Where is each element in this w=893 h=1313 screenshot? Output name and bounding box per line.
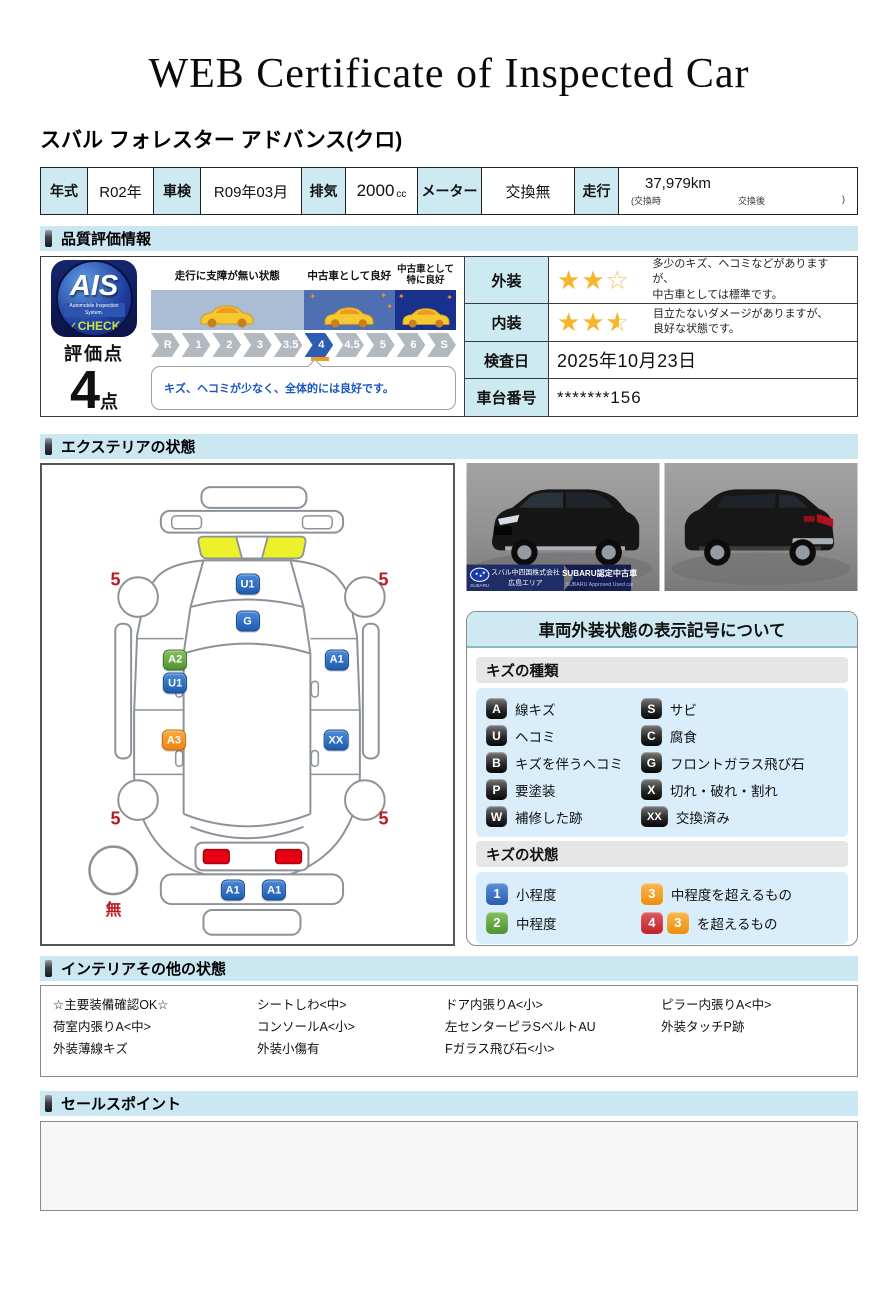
quality-box: AIS Automobile Inspection System. ✓CHECK… — [40, 256, 858, 417]
spec-displacement-label: 排気 — [302, 168, 346, 214]
interior-rating-row: 内装 ★★☆★ 目立たないダメージがありますが、 良好な状態です。 — [465, 304, 857, 342]
ais-score-panel: AIS Automobile Inspection System. ✓CHECK… — [41, 257, 147, 416]
ais-logo-subtext: Automobile Inspection System. — [64, 303, 125, 317]
damage-marker-A1: A1 — [325, 649, 349, 670]
interior-column: ドア内張りA<小>左センターピラSベルトAUFガラス飛び石<小> — [445, 995, 661, 1061]
section-bar-icon — [45, 1095, 52, 1112]
rating-zones: 走行に支障が無い状態 中古車として良好 ✦ ✦ ✦ 中古車として特に良好 — [151, 262, 456, 330]
spec-mileage-value: 37,979km (交換時 交換後 ) — [619, 168, 857, 214]
spare-tire-label: 無 — [105, 896, 121, 920]
mileage-number: 37,979km — [627, 175, 849, 192]
score-value: 4 点 — [70, 366, 118, 415]
legend-state-label: を超えるもの — [697, 913, 778, 933]
chassis-number-label: 車台番号 — [465, 379, 549, 416]
rating-scale: R1233.544.556S — [151, 333, 456, 357]
zone-1-band — [151, 290, 304, 330]
sparkle-icon: ✦ — [386, 302, 393, 311]
damage-code-badge: A — [486, 698, 507, 719]
damage-code-badge: W — [486, 806, 507, 827]
legend-kind-W: W補修した跡 — [486, 803, 641, 830]
star-full-icon: ★ — [581, 309, 604, 335]
interior-condition-item: 外装小傷有 — [257, 1039, 445, 1061]
legend-kind-label: 交換済み — [676, 807, 730, 827]
legend-kind-U: Uヘコミ — [486, 722, 641, 749]
severity-badge: 4 — [641, 912, 663, 934]
damage-code-badge: XX — [641, 806, 668, 827]
legend-kind-G: Gフロントガラス飛び石 — [641, 749, 838, 776]
legend-states-grid: 1小程度3中程度を超えるもの2中程度43を超えるもの — [476, 872, 848, 944]
legend-kind-label: 要塗装 — [515, 780, 556, 800]
legend-kind-C: C腐食 — [641, 722, 838, 749]
dealer-line1: スバル中四国株式会社 — [491, 568, 560, 577]
star-empty-icon: ☆ — [606, 267, 629, 293]
section-bar-icon — [45, 438, 52, 455]
inspection-date-row: 検査日 2025年10月23日 — [465, 342, 857, 380]
quality-section-title: 品質評価情報 — [61, 228, 151, 249]
severity-badge: 3 — [667, 912, 689, 934]
rating-zone-1: 走行に支障が無い状態 — [151, 262, 304, 330]
star-full-icon: ★ — [557, 309, 580, 335]
spec-inspection-value: R09年03月 — [201, 168, 302, 214]
car-icon — [195, 302, 259, 328]
quality-detail-table: 外装 ★★☆ 多少のキズ、ヘコミなどがありますが、 中古車としては標準です。 内… — [464, 257, 857, 416]
rating-step-3.5: 3.5 — [274, 333, 303, 357]
vehicle-photos: SUBARU スバル中四国株式会社 広島エリア SUBARU認定中古車 SUBA… — [466, 463, 858, 591]
rating-scale-panel: 走行に支障が無い状態 中古車として良好 ✦ ✦ ✦ 中古車として特に良好 — [147, 257, 464, 416]
dealer-line2: 広島エリア — [508, 578, 543, 587]
displacement-unit: cc — [396, 189, 406, 200]
interior-text-line2: 良好な状態です。 — [653, 322, 828, 337]
damage-marker-XX: XX — [324, 730, 349, 751]
spec-table: 年式 R02年 車検 R09年03月 排気 2000cc メーター 交換無 走行… — [40, 167, 858, 215]
legend-state-2: 2中程度 — [486, 908, 641, 937]
damage-marker-U1: U1 — [235, 574, 259, 595]
mileage-note: (交換時 交換後 ) — [627, 194, 849, 207]
sales-points-box — [40, 1121, 858, 1211]
legend-state-1: 1小程度 — [486, 879, 641, 908]
car-icon — [399, 305, 453, 328]
legend-kind-label: フロントガラス飛び石 — [670, 753, 805, 773]
tire-tread-score: 5 — [111, 808, 121, 829]
star-full-icon: ★ — [557, 267, 580, 293]
ais-logo-circle: AIS Automobile Inspection System. ✓CHECK — [56, 260, 133, 337]
photo-front-quarter: SUBARU スバル中四国株式会社 広島エリア SUBARU認定中古車 SUBA… — [466, 463, 660, 591]
spec-meter-value: 交換無 — [482, 168, 575, 214]
damage-code-badge: P — [486, 779, 507, 800]
legend-kind-P: P要塗装 — [486, 776, 641, 803]
interior-condition-item: ピラー内張りA<中> — [661, 995, 853, 1017]
interior-condition-item: Fガラス飛び石<小> — [445, 1039, 661, 1061]
zone-3-band: ✦ ✦ — [395, 290, 456, 330]
mileage-note-mid: 交換後 — [738, 194, 765, 207]
legend-kinds-grid: A線キズSサビUヘコミC腐食Bキズを伴うヘコミGフロントガラス飛び石P要塗装X切… — [476, 688, 848, 837]
interior-stars: ★★☆★ — [557, 309, 653, 335]
legend-kind-label: 切れ・破れ・割れ — [670, 780, 778, 800]
interior-section-title: インテリアその他の状態 — [61, 958, 226, 979]
legend-title: 車両外装状態の表示記号について — [467, 612, 857, 648]
dealer-banner: SUBARU スバル中四国株式会社 広島エリア SUBARU認定中古車 SUBA… — [466, 565, 637, 591]
legend-kind-label: ヘコミ — [515, 726, 556, 746]
sales-section-header: セールスポイント — [40, 1091, 858, 1116]
legend-kind-XX: XX交換済み — [641, 803, 838, 830]
badge-title: SUBARU認定中古車 — [562, 568, 637, 578]
interior-condition-item: 外装タッチP跡 — [661, 1017, 853, 1039]
legend-kind-label: 腐食 — [670, 726, 697, 746]
spec-mileage-label: 走行 — [575, 168, 619, 214]
legend-state-label: 中程度を超えるもの — [671, 884, 792, 904]
interior-rating-text: 目立たないダメージがありますが、 良好な状態です。 — [653, 307, 828, 338]
damage-marker-U1: U1 — [163, 673, 187, 694]
quality-section-header: 品質評価情報 — [40, 226, 858, 251]
damage-code-badge: G — [641, 752, 662, 773]
rating-zone-3: 中古車として特に良好 ✦ ✦ — [395, 262, 456, 330]
chassis-number-value: *******156 — [557, 388, 642, 408]
ais-logo: AIS Automobile Inspection System. ✓CHECK — [51, 260, 137, 337]
interior-text-line1: 目立たないダメージがありますが、 — [653, 307, 828, 322]
zone-2-band: ✦ ✦ ✦ — [304, 290, 396, 330]
mileage-note-close: ) — [842, 194, 845, 207]
severity-badge: 1 — [486, 883, 508, 905]
legend-kind-B: Bキズを伴うヘコミ — [486, 749, 641, 776]
rating-step-1: 1 — [182, 333, 211, 357]
damage-code-badge: S — [641, 698, 662, 719]
legend-state-label: 中程度 — [516, 913, 557, 933]
rating-zone-2: 中古車として良好 ✦ ✦ ✦ — [304, 262, 396, 330]
photo-rear-quarter — [664, 463, 858, 591]
legend-kind-S: Sサビ — [641, 695, 838, 722]
damage-marker-A1: A1 — [262, 880, 286, 901]
legend-kind-label: 線キズ — [515, 699, 556, 719]
rating-step-S: S — [427, 333, 456, 357]
legend-state-4: 43を超えるもの — [641, 908, 838, 937]
rating-scale-steps: R1233.544.556S — [151, 333, 456, 357]
spec-inspection-label: 車検 — [154, 168, 201, 214]
exterior-rating-label: 外装 — [465, 257, 549, 303]
rating-step-5: 5 — [366, 333, 395, 357]
damage-legend: 車両外装状態の表示記号について キズの種類 A線キズSサビUヘコミC腐食Bキズを… — [466, 611, 858, 946]
severity-badge: 2 — [486, 912, 508, 934]
interior-column: ☆主要装備確認OK☆荷室内張りA<中>外装薄線キズ — [53, 995, 257, 1061]
star-full-icon: ★ — [581, 267, 604, 293]
exterior-stars: ★★☆ — [557, 267, 652, 293]
interior-condition-item: シートしわ<中> — [257, 995, 445, 1017]
legend-kind-label: キズを伴うヘコミ — [515, 753, 623, 773]
page-title: WEB Certificate of Inspected Car — [40, 50, 858, 98]
interior-condition-item: 荷室内張りA<中> — [53, 1017, 257, 1039]
rating-step-2: 2 — [212, 333, 241, 357]
star-half-icon: ☆★ — [606, 309, 629, 335]
damage-code-badge: U — [486, 725, 507, 746]
damage-marker-A3: A3 — [162, 730, 186, 751]
displacement-number: 2000 — [357, 181, 395, 201]
legend-kind-X: X切れ・破れ・割れ — [641, 776, 838, 803]
ais-check-label: ✓CHECK — [58, 319, 131, 333]
spec-meter-label: メーター — [418, 168, 482, 214]
interior-column: ピラー内張りA<中>外装タッチP跡 — [661, 995, 853, 1061]
sales-section-title: セールスポイント — [61, 1093, 181, 1114]
car-icon — [320, 304, 378, 328]
legend-state-label: 小程度 — [516, 884, 557, 904]
inspection-date-value: 2025年10月23日 — [557, 347, 697, 373]
score-number: 4 — [70, 366, 100, 415]
exterior-section-header: エクステリアの状態 — [40, 434, 858, 459]
damage-code-badge: B — [486, 752, 507, 773]
ais-logo-text: AIS — [58, 272, 131, 301]
exterior-text-line1: 多少のキズ、ヘコミなどがありますが、 — [652, 257, 849, 288]
car-name: スバル フォレスター アドバンス(クロ) — [40, 124, 858, 154]
spec-displacement-value: 2000cc — [346, 168, 418, 214]
damage-code-badge: X — [641, 779, 662, 800]
section-bar-icon — [45, 960, 52, 977]
tire-tread-score: 5 — [379, 570, 389, 591]
interior-column: シートしわ<中>コンソールA<小>外装小傷有 — [257, 995, 445, 1061]
damage-code-badge: C — [641, 725, 662, 746]
interior-condition-item: 左センターピラSベルトAU — [445, 1017, 661, 1039]
interior-condition-box: ☆主要装備確認OK☆荷室内張りA<中>外装薄線キズシートしわ<中>コンソールA<… — [40, 985, 858, 1077]
rating-step-6: 6 — [397, 333, 426, 357]
sparkle-icon: ✦ — [310, 292, 317, 301]
interior-condition-item: コンソールA<小> — [257, 1017, 445, 1039]
interior-condition-item: ☆主要装備確認OK☆ — [53, 995, 257, 1017]
exterior-rating-row: 外装 ★★☆ 多少のキズ、ヘコミなどがありますが、 中古車としては標準です。 — [465, 257, 857, 304]
rating-step-4: 4 — [305, 333, 334, 357]
sparkle-icon: ✦ — [398, 292, 405, 301]
spec-year-value: R02年 — [88, 168, 154, 214]
comment-text: キズ、ヘコミが少なく、全体的には良好です。 — [164, 380, 394, 396]
exterior-section-title: エクステリアの状態 — [61, 436, 196, 457]
brand-text: SUBARU — [470, 583, 489, 588]
check-icon: ✓ — [68, 319, 78, 333]
chassis-number-row: 車台番号 *******156 — [465, 379, 857, 416]
legend-state-header: キズの状態 — [476, 841, 848, 867]
car-top-view-schematic — [42, 465, 453, 944]
sparkle-icon: ✦ — [446, 293, 453, 302]
car-damage-diagram: U1GA2U1A1A3XXA1A15555無 — [40, 463, 455, 946]
badge-sub: SUBARU Approved Used car — [565, 582, 633, 588]
exterior-text-line2: 中古車としては標準です。 — [652, 288, 849, 303]
legend-state-3: 3中程度を超えるもの — [641, 879, 838, 908]
damage-marker-G: G — [236, 611, 260, 632]
zone-2-label: 中古車として良好 — [304, 262, 396, 290]
comment-box: キズ、ヘコミが少なく、全体的には良好です。 — [151, 366, 456, 410]
comment-notch — [308, 359, 322, 373]
legend-kind-header: キズの種類 — [476, 657, 848, 683]
interior-rating-label: 内装 — [465, 304, 549, 341]
certificate-page: WEB Certificate of Inspected Car スバル フォレ… — [0, 50, 893, 1211]
tire-tread-score: 5 — [111, 570, 121, 591]
legend-kind-label: 補修した跡 — [515, 807, 583, 827]
tire-tread-score: 5 — [379, 808, 389, 829]
rating-step-3: 3 — [243, 333, 272, 357]
rating-step-R: R — [151, 333, 180, 357]
interior-condition-item: 外装薄線キズ — [53, 1039, 257, 1061]
inspection-date-label: 検査日 — [465, 342, 549, 379]
mileage-note-open: (交換時 — [631, 194, 661, 207]
rating-step-4.5: 4.5 — [335, 333, 364, 357]
ais-check-text: CHECK — [78, 319, 121, 333]
severity-badge: 3 — [641, 883, 663, 905]
section-bar-icon — [45, 230, 52, 247]
score-unit: 点 — [100, 394, 118, 410]
zone-1-label: 走行に支障が無い状態 — [151, 262, 304, 290]
interior-condition-item: ドア内張りA<小> — [445, 995, 661, 1017]
damage-marker-A2: A2 — [163, 649, 187, 670]
legend-kind-label: サビ — [670, 699, 697, 719]
legend-kind-A: A線キズ — [486, 695, 641, 722]
zone-3-label: 中古車として特に良好 — [395, 262, 456, 290]
damage-marker-A1: A1 — [221, 880, 245, 901]
spec-year-label: 年式 — [41, 168, 88, 214]
exterior-rating-text: 多少のキズ、ヘコミなどがありますが、 中古車としては標準です。 — [652, 257, 849, 303]
interior-section-header: インテリアその他の状態 — [40, 956, 858, 981]
sparkle-icon: ✦ — [380, 291, 387, 300]
